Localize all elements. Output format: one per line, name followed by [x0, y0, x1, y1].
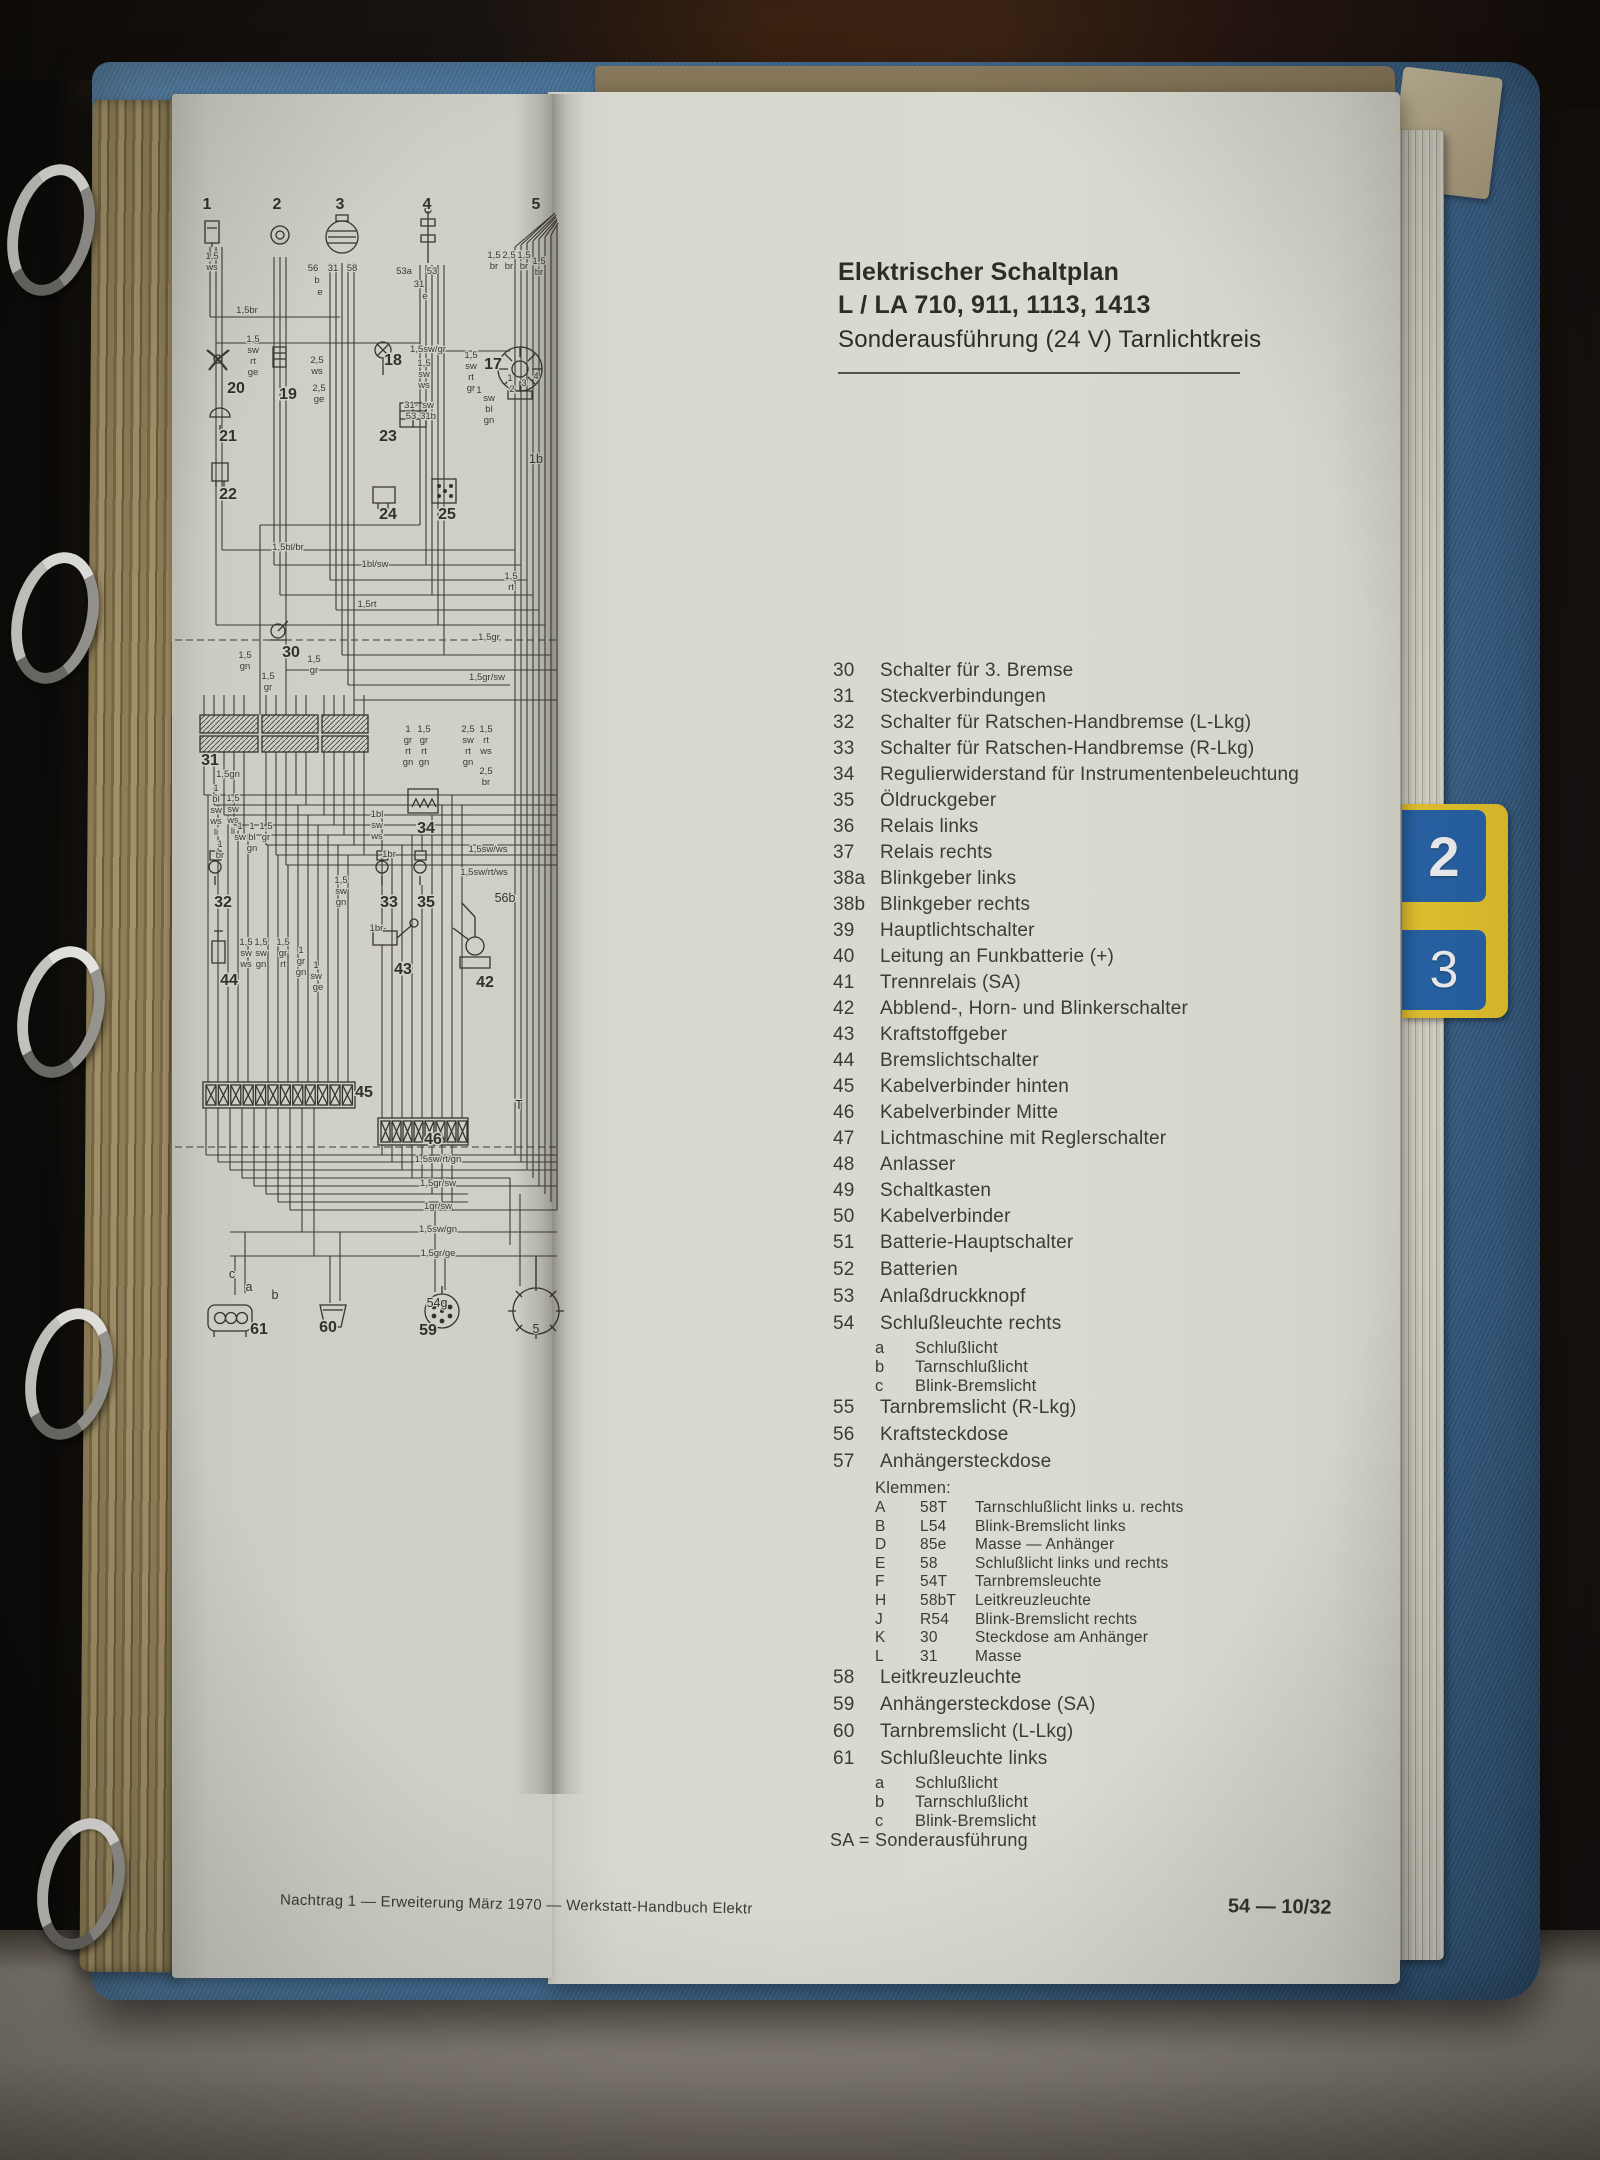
wire-label: gr	[310, 665, 318, 676]
photo-of-workshop-manual: 2 3	[0, 0, 1600, 2160]
klemmen-code: R54	[920, 1611, 975, 1629]
legend-text: Relais links	[880, 816, 979, 837]
klemmen-text: Schlußlicht links und rechts	[975, 1555, 1168, 1572]
klemmen-row: H58bTLeitkreuzleuchte	[833, 1592, 1299, 1611]
legend-text: Kabelverbinder	[880, 1206, 1011, 1227]
legend-number: 53	[833, 1285, 880, 1309]
legend-number: 38b	[833, 893, 880, 917]
legend-number: 55	[833, 1396, 880, 1420]
klemmen-letter: L	[875, 1648, 920, 1666]
wiring-diagram: 1234517181920212223242530313233343544434…	[170, 95, 570, 1985]
legend-text: Schlußleuchte links	[880, 1748, 1048, 1769]
legend-text: Batterie-Hauptschalter	[880, 1232, 1073, 1253]
klemmen-letter: A	[875, 1499, 920, 1517]
wire-label: 1,5sw/rt/ws	[460, 867, 508, 878]
legend-sub-text: Tarnschlußlicht	[915, 1358, 1028, 1376]
diagram-mark: a	[246, 1280, 253, 1294]
legend-text: Bremslichtschalter	[880, 1050, 1039, 1071]
wire-label: 2,5	[479, 766, 492, 777]
wire-label: 1,5	[259, 821, 272, 832]
page-title: Elektrischer Schaltplan	[838, 256, 1261, 289]
legend-number: 43	[833, 1023, 880, 1047]
legend-sub-letter: c	[875, 1377, 915, 1395]
wire-label: 31	[328, 263, 339, 274]
wire-label: 1,5gr/ge	[421, 1248, 456, 1259]
legend-text: Lichtmaschine mit Reglerschalter	[880, 1128, 1166, 1149]
component-number: 61	[250, 1321, 268, 1338]
wire-label: 1,5	[254, 937, 267, 948]
legend-row: 60Tarnbremslicht (L-Lkg)	[833, 1720, 1299, 1747]
component-number: 34	[417, 820, 435, 837]
wire-label: ge	[314, 394, 325, 405]
wire-label: e	[422, 291, 427, 302]
legend-subrow: aSchlußlicht	[833, 1339, 1299, 1358]
legend-row: 30Schalter für 3. Bremse	[833, 659, 1299, 685]
wire-label: 1,5	[487, 250, 500, 261]
diagram-mark: 5	[533, 1322, 540, 1336]
component-number: 3	[336, 196, 345, 213]
wire-label: br	[216, 850, 224, 861]
wire-label: gn	[419, 757, 430, 768]
wire-label: 1,5gr/sw	[420, 1178, 456, 1189]
wire-label: sw	[422, 400, 434, 411]
klemmen-row: L31Masse	[833, 1648, 1299, 1667]
klemmen-letter: F	[875, 1573, 920, 1591]
legend-sub-text: Tarnschlußlicht	[915, 1793, 1028, 1811]
legend-row: 54Schlußleuchte rechts	[833, 1312, 1299, 1339]
wire-label: rt	[405, 746, 411, 757]
wire-label: sw	[234, 832, 246, 843]
klemmen-letter: H	[875, 1592, 920, 1610]
component-number: 44	[220, 972, 238, 989]
legend-row: 46Kabelverbinder Mitte	[833, 1101, 1299, 1127]
legend-text: Regulierwiderstand für Instrumentenbeleu…	[880, 764, 1299, 785]
legend-text: Schalter für 3. Bremse	[880, 660, 1073, 681]
wire-label: 2,5	[502, 250, 515, 261]
klemmen-text: Tarnbremsleuchte	[975, 1573, 1101, 1590]
legend-row: 37Relais rechts	[833, 841, 1299, 867]
klemmen-row: JR54Blink-Bremslicht rechts	[833, 1611, 1299, 1630]
wire-label: br	[490, 261, 498, 272]
legend-row: 41Trennrelais (SA)	[833, 971, 1299, 997]
component-number: 4	[423, 196, 432, 213]
component-number: 30	[282, 644, 300, 661]
wire-label: gr	[420, 735, 428, 746]
wire-label: 4	[533, 371, 538, 382]
wire-label: rt	[280, 959, 286, 970]
component-number: 43	[394, 961, 412, 978]
legend-text: Kraftstoffgeber	[880, 1024, 1007, 1045]
klemmen-text: Blink-Bremslicht links	[975, 1518, 1126, 1535]
wire-label: gn	[336, 897, 347, 908]
klemmen-row: F54TTarnbremsleuchte	[833, 1573, 1299, 1592]
wire-label: 1	[217, 839, 222, 850]
wire-label: ge	[248, 367, 259, 378]
legend-text: Batterien	[880, 1259, 958, 1280]
legend-subrow: bTarnschlußlicht	[833, 1358, 1299, 1377]
wire-label: br	[505, 261, 513, 272]
legend-sub-text: Schlußlicht	[915, 1774, 998, 1792]
title-block: Elektrischer Schaltplan L / LA 710, 911,…	[838, 256, 1261, 358]
wire-label: ws	[205, 262, 218, 273]
legend-number: 40	[833, 945, 880, 969]
wire-label: 1gr/sw	[424, 1201, 452, 1212]
legend-text: Tarnbremslicht (L-Lkg)	[880, 1721, 1073, 1742]
legend-row: 53Anlaßdruckknopf	[833, 1285, 1299, 1312]
klemmen-text: Masse — Anhänger	[975, 1536, 1114, 1553]
legend-row: 43Kraftstoffgeber	[833, 1023, 1299, 1049]
wire-label: gr	[262, 832, 270, 843]
legend-subrow: cBlink-Bremslicht	[833, 1377, 1299, 1396]
component-number: 20	[227, 380, 245, 397]
klemmen-code: 58T	[920, 1499, 975, 1517]
legend-text: Abblend-, Horn- und Blinkerschalter	[880, 998, 1188, 1019]
legend-number: 56	[833, 1423, 880, 1447]
wire-label: 1	[405, 724, 410, 735]
wire-label: 1,5	[532, 256, 545, 267]
wire-label: 1	[213, 783, 218, 794]
legend-row: 38aBlinkgeber links	[833, 867, 1299, 893]
legend-number: 38a	[833, 867, 880, 891]
klemmen-letter: K	[875, 1629, 920, 1647]
legend-number: 41	[833, 971, 880, 995]
legend-text: Schalter für Ratschen-Handbremse (R-Lkg)	[880, 738, 1254, 759]
legend-number: 52	[833, 1258, 880, 1282]
sa-abbreviation-note: SA = Sonderausführung	[830, 1830, 1028, 1851]
wiring-lines	[175, 213, 558, 1303]
legend-text: Blinkgeber links	[880, 868, 1016, 889]
legend-number: 35	[833, 789, 880, 813]
legend-sub-letter: a	[875, 1774, 915, 1792]
legend-text: Anlasser	[880, 1154, 956, 1175]
legend-number: 48	[833, 1153, 880, 1177]
component-number: 1	[203, 196, 212, 213]
wire-label: rt	[508, 582, 514, 593]
wire-label: sw	[483, 393, 495, 404]
wire-label: 1,5gr/sw	[469, 672, 505, 683]
wire-label: 1	[249, 821, 254, 832]
wire-label: 1,5rt	[357, 599, 376, 610]
legend-sub-text: Blink-Bremslicht	[915, 1377, 1036, 1395]
component-number: 22	[219, 486, 237, 503]
legend-number: 37	[833, 841, 880, 865]
wire-label: 1,5	[246, 334, 259, 345]
legend-number: 31	[833, 685, 880, 709]
register-tab-2: 2	[1402, 810, 1486, 902]
component-number: 32	[214, 894, 232, 911]
wire-label: gr	[404, 735, 412, 746]
register-tab-2-label: 2	[1428, 840, 1459, 873]
wire-label: gn	[256, 959, 267, 970]
wire-label: ws	[479, 746, 492, 757]
wire-label: 1,5	[261, 671, 274, 682]
page-number: 54 — 10/32	[1228, 1895, 1332, 1919]
klemmen-code: 54T	[920, 1573, 975, 1591]
legend-sub-text: Blink-Bremslicht	[915, 1812, 1036, 1830]
legend-row: 40Leitung an Funkbatterie (+)	[833, 945, 1299, 971]
klemmen-row: A58TTarnschlußlicht links u. rechts	[833, 1499, 1299, 1518]
wire-label: 1,5br	[236, 305, 258, 316]
diagram-mark: T	[515, 1098, 523, 1112]
klemmen-row: D85eMasse — Anhänger	[833, 1536, 1299, 1555]
component-number: 18	[384, 352, 402, 369]
legend-text: Schlußleuchte rechts	[880, 1313, 1061, 1334]
klemmen-text: Masse	[975, 1648, 1022, 1665]
klemmen-text: Leitkreuzleuchte	[975, 1592, 1091, 1609]
wire-label: 53	[427, 266, 438, 277]
wire-label: gn	[463, 757, 474, 768]
legend-row: 39Hauptlichtschalter	[833, 919, 1299, 945]
diagram-mark: c	[229, 1267, 235, 1281]
wire-label: e	[317, 287, 322, 298]
klemmen-text: Steckdose am Anhänger	[975, 1629, 1148, 1646]
wire-label: ws	[209, 816, 222, 827]
legend-text: Kabelverbinder hinten	[880, 1076, 1069, 1097]
component-number: 46	[424, 1131, 442, 1148]
legend-number: 51	[833, 1231, 880, 1255]
wire-label: ws	[370, 831, 383, 842]
wire-label: 1,5	[205, 251, 218, 262]
legend-text: Relais rechts	[880, 842, 992, 863]
klemmen-letter: D	[875, 1536, 920, 1554]
wire-label: rt	[468, 372, 474, 383]
legend-text: Leitkreuzleuchte	[880, 1667, 1022, 1688]
component-number: 21	[219, 428, 237, 445]
legend-text: Trennrelais (SA)	[880, 972, 1021, 993]
wire-label: br	[482, 777, 490, 788]
legend-text: Anhängersteckdose	[880, 1451, 1051, 1472]
wire-label: 1,5	[307, 654, 320, 665]
legend-sub-text: Schlußlicht	[915, 1339, 998, 1357]
klemmen-row: K30Steckdose am Anhänger	[833, 1629, 1299, 1648]
wire-label: 1	[237, 821, 242, 832]
wire-label: sw	[227, 804, 239, 815]
title-rule	[838, 372, 1240, 374]
legend-number: 44	[833, 1049, 880, 1073]
wire-label: gn	[240, 661, 251, 672]
klemmen-row: E58Schlußlicht links und rechts	[833, 1555, 1299, 1574]
component-number: 19	[279, 386, 297, 403]
legend-text: Kraftsteckdose	[880, 1424, 1008, 1445]
wire-label: gr	[297, 956, 305, 967]
wire-label: 1	[476, 385, 481, 396]
component-number: 45	[355, 1084, 373, 1101]
wire-label: gr	[264, 682, 272, 693]
legend-row: 35Öldruckgeber	[833, 789, 1299, 815]
wire-label: sw	[240, 948, 252, 959]
legend-list: 30Schalter für 3. Bremse31Steckverbindun…	[833, 659, 1299, 1831]
component-number: 35	[417, 894, 435, 911]
wire-label: 1br	[382, 849, 396, 860]
wire-label: ws	[239, 959, 252, 970]
wire-label: li	[214, 827, 218, 838]
wire-label: 1br-	[370, 923, 387, 934]
legend-row: 42Abblend-, Horn- und Blinkerschalter	[833, 997, 1299, 1023]
wire-label: sw	[210, 805, 222, 816]
component-number: 2	[273, 196, 282, 213]
legend-row: 61Schlußleuchte links	[833, 1747, 1299, 1774]
component-number: 60	[319, 1319, 337, 1336]
klemmen-code: 58bT	[920, 1592, 975, 1610]
component-number: 59	[419, 1322, 437, 1339]
legend-text: Schaltkasten	[880, 1180, 991, 1201]
legend-number: 36	[833, 815, 880, 839]
wire-label: ws	[310, 366, 323, 377]
wire-label: sw	[371, 820, 383, 831]
wire-label: rt	[250, 356, 256, 367]
legend-number: 32	[833, 711, 880, 735]
legend-number: 61	[833, 1747, 880, 1771]
legend-row: 57Anhängersteckdose	[833, 1450, 1299, 1477]
wire-label: 53	[406, 411, 417, 422]
wire-label: 2,5	[310, 355, 323, 366]
wire-label: 3	[521, 378, 526, 389]
wire-label: 53a	[396, 266, 413, 277]
page-edge-stack-right	[1398, 130, 1444, 1960]
wire-label: sw	[418, 369, 430, 380]
legend-number: 33	[833, 737, 880, 761]
page-title-models: L / LA 710, 911, 1113, 1413	[838, 289, 1261, 322]
klemmen-code: 31	[920, 1648, 975, 1666]
wire-label: br	[535, 267, 543, 278]
wire-label: 1,5	[334, 875, 347, 886]
legend-number: 50	[833, 1205, 880, 1229]
legend-number: 57	[833, 1450, 880, 1474]
wire-label: 1,5gn	[216, 769, 240, 780]
wire-label: rt	[421, 746, 427, 757]
wire-label: sw	[335, 886, 347, 897]
register-tab-3-label: 3	[1430, 952, 1459, 988]
wire-label: 2,5	[312, 383, 325, 394]
legend-number: 58	[833, 1666, 880, 1690]
wire-label: sw	[247, 345, 259, 356]
klemmen-code: 58	[920, 1555, 975, 1573]
legend-row: 51Batterie-Hauptschalter	[833, 1231, 1299, 1258]
legend-text: Hauptlichtschalter	[880, 920, 1035, 941]
diagram-mark: 54g	[427, 1296, 448, 1310]
legend-number: 49	[833, 1179, 880, 1203]
wire-label: bl	[485, 404, 492, 415]
wire-label: 1,5bl/br	[272, 542, 304, 553]
legend-text: Steckverbindungen	[880, 686, 1046, 707]
legend-sub-letter: b	[875, 1358, 915, 1376]
klemmen-row: BL54Blink-Bremslicht links	[833, 1518, 1299, 1537]
klemmen-code: 30	[920, 1629, 975, 1647]
component-number: 24	[379, 506, 397, 523]
diagram-text-layer: 1234517181920212223242530313233343544434…	[201, 196, 546, 1339]
wire-label: 1bl	[371, 809, 384, 820]
klemmen-letter: B	[875, 1518, 920, 1536]
legend-number: 30	[833, 659, 880, 683]
legend-text: Leitung an Funkbatterie (+)	[880, 946, 1114, 967]
klemmen-code: L54	[920, 1518, 975, 1536]
wire-label: gn	[484, 415, 495, 426]
legend-row: 31Steckverbindungen	[833, 685, 1299, 711]
component-number: 42	[476, 974, 494, 991]
legend-subrow: aSchlußlicht	[833, 1774, 1299, 1793]
wire-label: 1	[298, 945, 303, 956]
legend-number: 47	[833, 1127, 880, 1151]
legend-subrow: cBlink-Bremslicht	[833, 1812, 1299, 1831]
wire-label: 58	[347, 263, 358, 274]
legend-text: Tarnbremslicht (R-Lkg)	[880, 1397, 1077, 1418]
wire-label: 2,5	[461, 724, 474, 735]
wire-label: 31	[414, 279, 425, 290]
wire-label: ws	[417, 380, 430, 391]
legend-number: 42	[833, 997, 880, 1021]
wire-label: 1,5	[226, 793, 239, 804]
wire-label: sw	[462, 735, 474, 746]
wire-label: 1,5	[417, 358, 430, 369]
wire-label: 31-	[404, 400, 418, 411]
legend-row: 47Lichtmaschine mit Reglerschalter	[833, 1127, 1299, 1153]
legend-row: 50Kabelverbinder	[833, 1205, 1299, 1231]
component-number: 31	[201, 752, 219, 769]
wire-label: 1,5	[479, 724, 492, 735]
wire-label: bl	[248, 832, 255, 843]
wire-label: 1,5	[417, 724, 430, 735]
legend-row: 56Kraftsteckdose	[833, 1423, 1299, 1450]
legend-sub-letter: c	[875, 1812, 915, 1830]
wire-label: 1	[313, 960, 318, 971]
legend-text: Anhängersteckdose (SA)	[880, 1694, 1096, 1715]
page-subtitle: Sonderausführung (24 V) Tarnlichtkreis	[838, 322, 1261, 358]
wire-label: 1,5	[276, 937, 289, 948]
legend-row: 36Relais links	[833, 815, 1299, 841]
wire-label: sw	[255, 948, 267, 959]
wire-label: 1,5sw/ws	[468, 844, 507, 855]
diagram-mark: b	[272, 1288, 279, 1302]
legend-row: 38bBlinkgeber rechts	[833, 893, 1299, 919]
legend-number: 54	[833, 1312, 880, 1336]
wire-label: bl	[212, 794, 219, 805]
legend-row: 44Bremslichtschalter	[833, 1049, 1299, 1075]
wire-label: gn	[403, 757, 414, 768]
klemmen-letter: E	[875, 1555, 920, 1573]
component-number: 5	[532, 196, 541, 213]
wire-label: sw	[310, 971, 322, 982]
klemmen-code: 85e	[920, 1536, 975, 1554]
wire-label: gr	[279, 948, 287, 959]
legend-number: 45	[833, 1075, 880, 1099]
legend-row: 33Schalter für Ratschen-Handbremse (R-Lk…	[833, 737, 1299, 763]
klemmen-letter: J	[875, 1611, 920, 1629]
klemmen-heading: Klemmen:	[833, 1477, 1299, 1499]
legend-subrow: bTarnschlußlicht	[833, 1793, 1299, 1812]
legend-row: 49Schaltkasten	[833, 1179, 1299, 1205]
legend-row: 58Leitkreuzleuchte	[833, 1666, 1299, 1693]
wire-label: 1,5gr	[478, 632, 500, 643]
wire-label: 1,5	[504, 571, 517, 582]
legend-text: Blinkgeber rechts	[880, 894, 1030, 915]
legend-row: 55Tarnbremslicht (R-Lkg)	[833, 1396, 1299, 1423]
wire-label: ge	[313, 982, 324, 993]
legend-number: 39	[833, 919, 880, 943]
wire-label: 31b	[420, 411, 436, 422]
wire-label: 1,5	[238, 650, 251, 661]
legend-number: 46	[833, 1101, 880, 1125]
legend-number: 60	[833, 1720, 880, 1744]
wire-label: 1,5	[464, 350, 477, 361]
legend-row: 45Kabelverbinder hinten	[833, 1075, 1299, 1101]
component-number: 33	[380, 894, 398, 911]
diagram-mark: 56b	[495, 891, 516, 905]
wire-label: sw	[465, 361, 477, 372]
legend-row: 52Batterien	[833, 1258, 1299, 1285]
legend-sub-letter: a	[875, 1339, 915, 1357]
wire-label: gr	[467, 383, 475, 394]
legend-row: 59Anhängersteckdose (SA)	[833, 1693, 1299, 1720]
